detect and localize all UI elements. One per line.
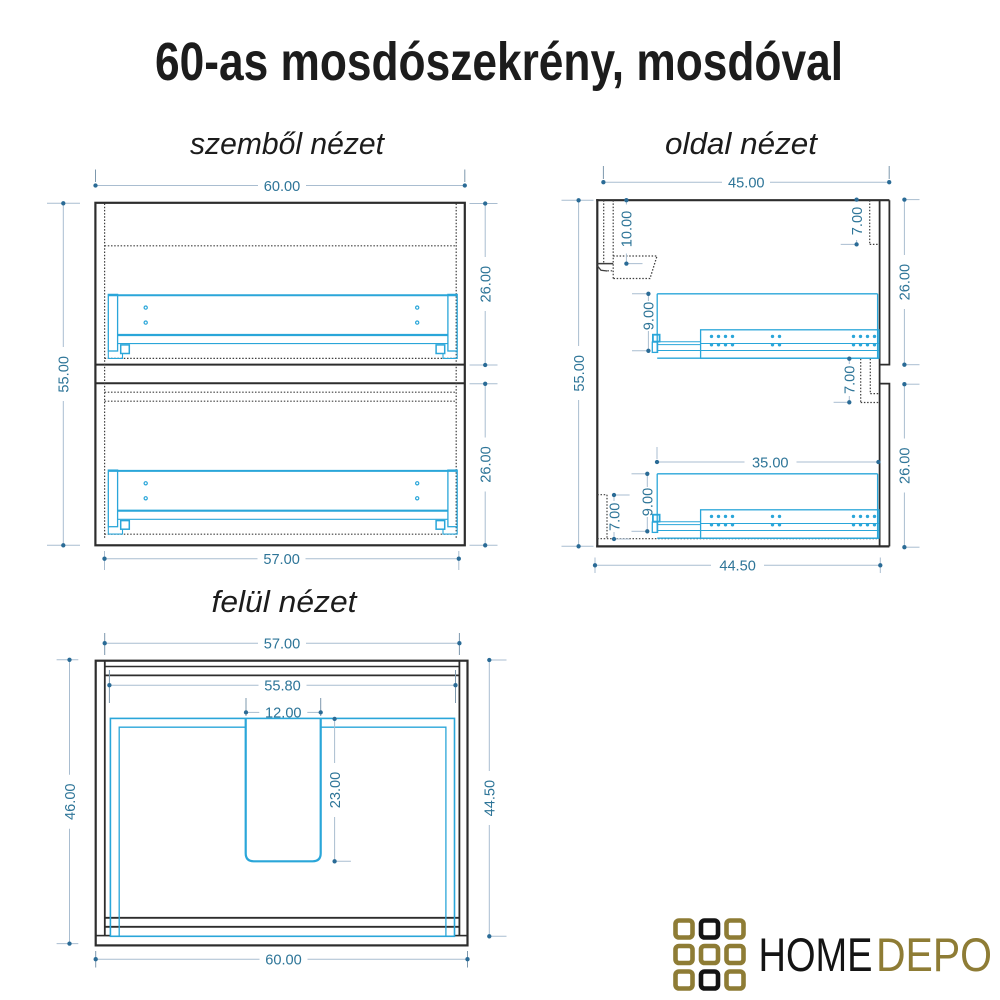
svg-text:35.00: 35.00 [752, 455, 789, 471]
svg-text:57.00: 57.00 [263, 552, 300, 568]
svg-text:7.00: 7.00 [850, 207, 866, 235]
svg-text:7.00: 7.00 [843, 366, 859, 394]
svg-text:45.00: 45.00 [728, 176, 765, 192]
svg-text:55.00: 55.00 [57, 356, 73, 393]
svg-text:DEPO: DEPO [876, 928, 992, 981]
svg-text:60.00: 60.00 [264, 179, 301, 195]
svg-text:felül nézet: felül nézet [212, 584, 358, 619]
svg-text:55.80: 55.80 [264, 679, 301, 695]
svg-text:12.00: 12.00 [265, 706, 302, 722]
svg-text:10.00: 10.00 [620, 211, 636, 248]
svg-text:60-as mosdószekrény, mosdóval: 60-as mosdószekrény, mosdóval [155, 32, 843, 92]
svg-text:57.00: 57.00 [264, 637, 301, 653]
svg-text:26.00: 26.00 [898, 264, 914, 301]
svg-text:7.00: 7.00 [607, 503, 623, 531]
svg-text:9.00: 9.00 [641, 488, 657, 516]
svg-text:60.00: 60.00 [265, 953, 302, 969]
svg-text:26.00: 26.00 [898, 447, 914, 484]
svg-text:oldal nézet: oldal nézet [665, 126, 818, 161]
svg-text:26.00: 26.00 [479, 266, 495, 303]
svg-text:26.00: 26.00 [479, 446, 495, 483]
svg-text:23.00: 23.00 [328, 772, 344, 809]
svg-text:44.50: 44.50 [483, 780, 499, 817]
svg-text:46.00: 46.00 [63, 783, 79, 820]
svg-text:HOME: HOME [759, 928, 873, 981]
svg-text:szemből nézet: szemből nézet [190, 126, 385, 161]
svg-text:9.00: 9.00 [642, 302, 658, 330]
svg-text:55.00: 55.00 [572, 355, 588, 392]
svg-text:44.50: 44.50 [719, 559, 756, 575]
